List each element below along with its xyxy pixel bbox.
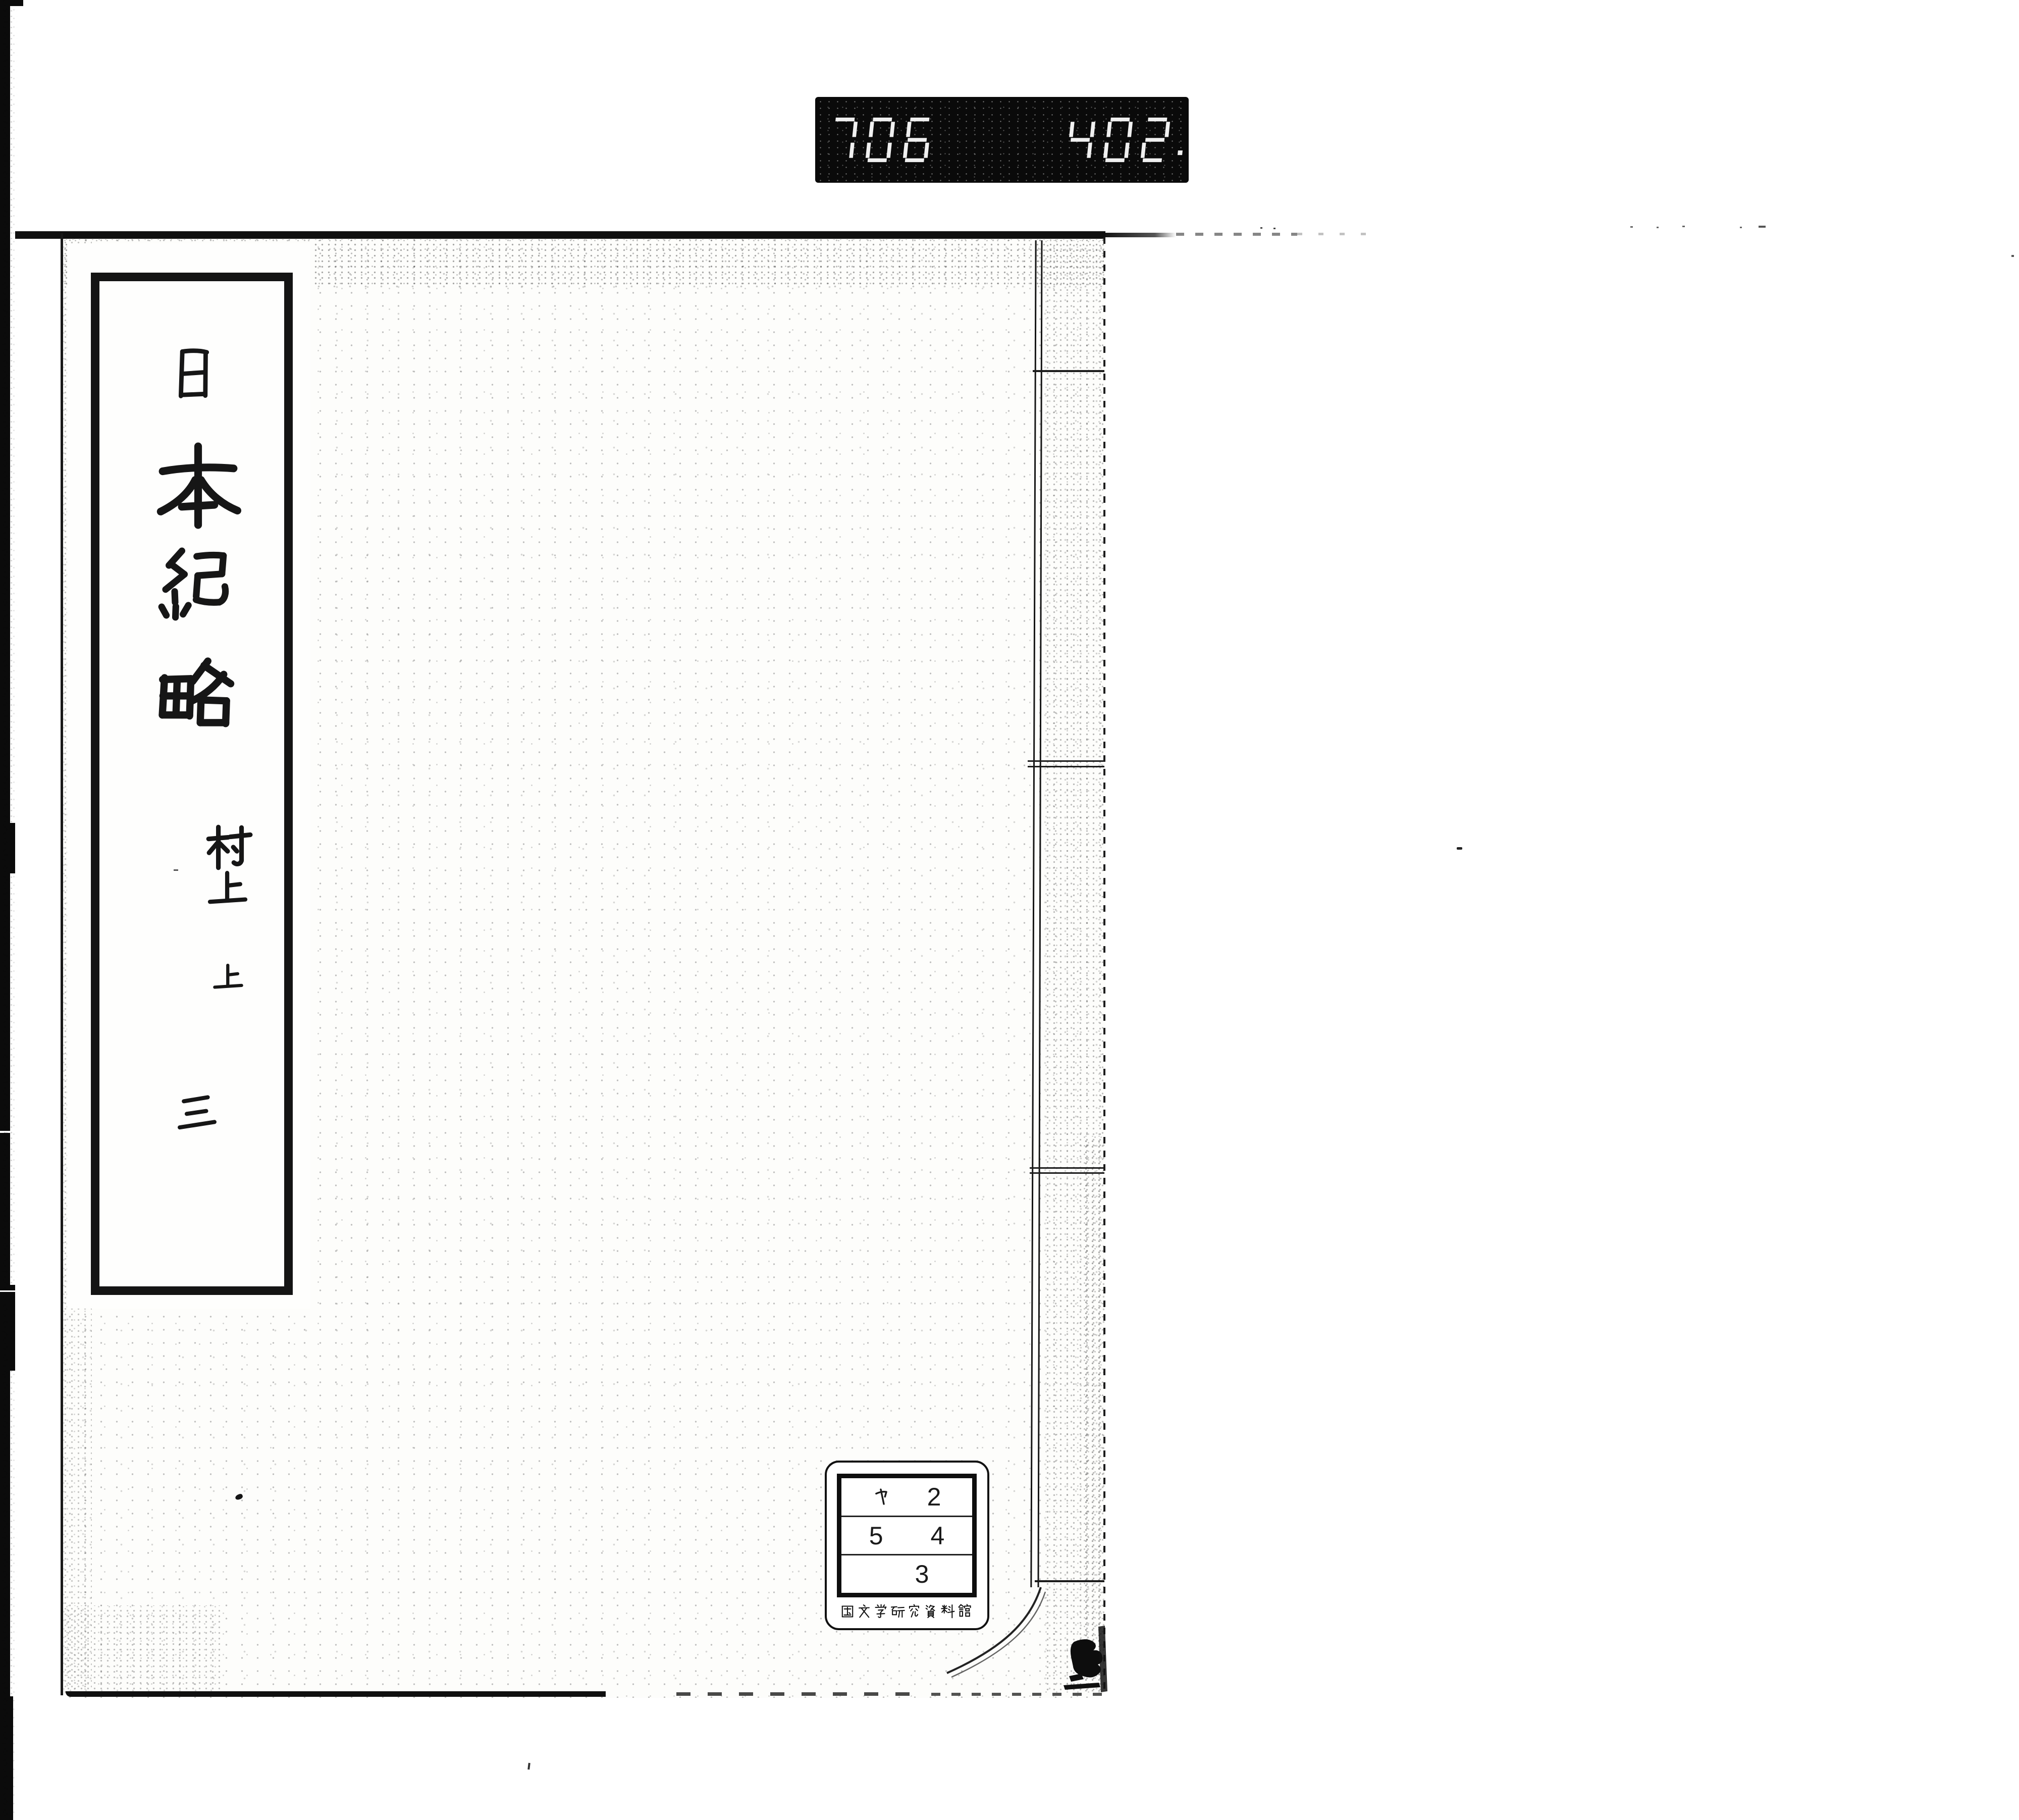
edge-bump xyxy=(0,823,15,873)
call-number-display xyxy=(815,97,1189,183)
speck xyxy=(1260,227,1262,229)
annotation-text xyxy=(200,822,257,923)
cover-left-edge xyxy=(61,233,63,1695)
binding-stitch xyxy=(1035,1580,1104,1582)
edge-bump xyxy=(0,1696,13,1820)
cover-bottom-edge-dashes xyxy=(676,1692,914,1696)
volume-marker-text xyxy=(201,962,255,997)
volume-number-text xyxy=(164,1092,229,1137)
speck xyxy=(174,869,178,871)
edge-crack xyxy=(0,1290,16,1292)
cover-bottom-edge-dashes xyxy=(931,1693,1103,1696)
scan-page: 2 54 3 xyxy=(0,0,2019,1820)
speck xyxy=(1759,226,1766,228)
speck xyxy=(527,1763,530,1770)
title-label xyxy=(67,243,310,1309)
speck xyxy=(2011,255,2014,257)
edge-bump xyxy=(0,1285,15,1371)
institution-name xyxy=(830,1603,981,1620)
call-number-right-digits xyxy=(1064,116,1188,164)
binding-stitch xyxy=(1030,1172,1104,1174)
library-call-grid: 2 54 3 xyxy=(837,1474,977,1597)
title-text xyxy=(142,341,250,745)
call-grid-row: 3 xyxy=(841,1555,972,1593)
speck xyxy=(1682,226,1685,227)
cover-bottom-edge xyxy=(66,1691,606,1697)
edge-crack xyxy=(0,1131,11,1133)
speck xyxy=(1630,226,1633,228)
cover-top-edge xyxy=(15,231,1105,239)
binding-stitch xyxy=(1033,370,1104,372)
speck xyxy=(1273,228,1276,229)
binding-stitch xyxy=(1028,766,1104,767)
cover-right-edge xyxy=(1103,237,1105,1695)
title-label-border xyxy=(91,273,293,1295)
scan-corner-mark xyxy=(0,0,23,6)
call-number-left-digits xyxy=(826,116,935,164)
call-grid-row: 54 xyxy=(841,1517,972,1556)
binding-stitch xyxy=(1028,760,1104,762)
scan-left-edge-bar xyxy=(0,0,10,1820)
speck xyxy=(1457,847,1462,850)
library-label: 2 54 3 xyxy=(825,1461,989,1630)
speck xyxy=(1657,227,1659,228)
speck xyxy=(1740,227,1742,228)
top-edge-dashes xyxy=(1176,233,1297,236)
top-edge-dashes-faint xyxy=(1297,233,1373,235)
binding-stitch xyxy=(1030,1167,1104,1169)
call-grid-row: 2 xyxy=(841,1478,972,1517)
top-edge-extension xyxy=(1105,233,1176,237)
